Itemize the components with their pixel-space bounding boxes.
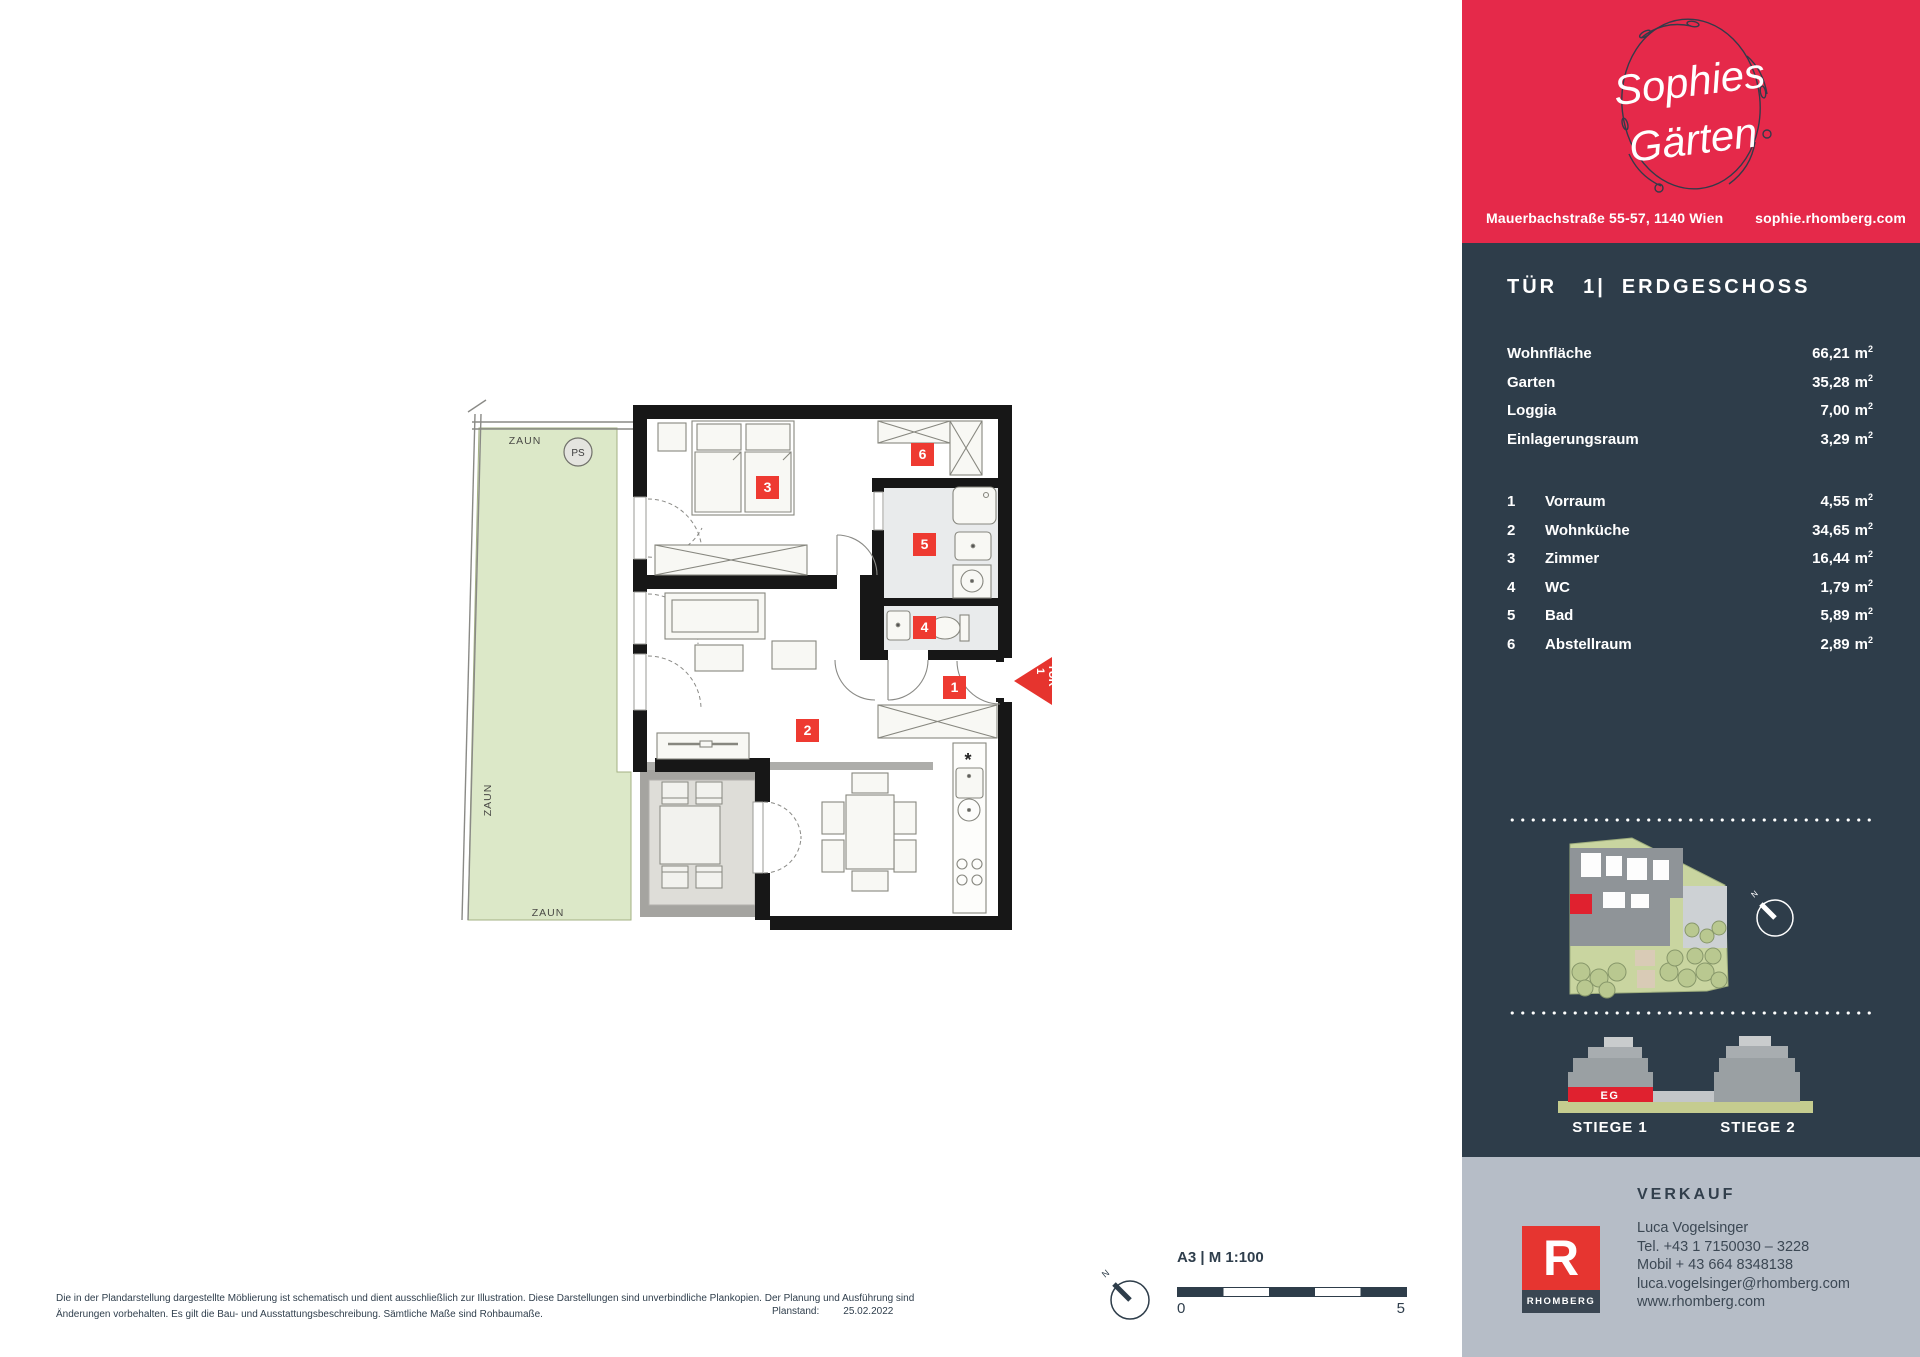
sales-footer: R RHOMBERG VERKAUF Luca Vogelsinger Tel.… [1462, 1157, 1920, 1357]
sales-contact: Luca Vogelsinger Tel. +43 1 7150030 – 32… [1637, 1219, 1850, 1312]
sales-mobile: Mobil + 43 664 8348138 [1637, 1256, 1850, 1275]
area-row: Einlagerungsraum 3,29m2 [1507, 426, 1873, 455]
floor-plan: PS ZAUN ZAUN ZAUN [440, 390, 1080, 950]
wc [884, 606, 998, 650]
area-row: Garten 35,28m2 [1507, 369, 1873, 398]
loggia-door [753, 802, 801, 873]
brand-header: Sophies Gärten Mauerbachstraße 55-57, 11… [1462, 0, 1920, 243]
room-row: 2 Wohnküche 34,65m2 [1507, 517, 1873, 546]
rhomberg-logo-icon: R [1522, 1226, 1600, 1290]
area-row: Loggia 7,00m2 [1507, 397, 1873, 426]
scale-numbers: 0 5 [1177, 1300, 1405, 1317]
bedroom-furniture [655, 421, 807, 575]
svg-text:6: 6 [919, 446, 927, 462]
rhomberg-logo-caption: RHOMBERG [1522, 1290, 1600, 1313]
planstand: Planstand:25.02.2022 [772, 1306, 893, 1317]
building-elevation: EG STIEGE 1 STIEGE 2 [1507, 1025, 1837, 1143]
room-row: 1 Vorraum 4,55m2 [1507, 488, 1873, 517]
disclaimer-line1: Die in der Plandarstellung dargestellte … [56, 1291, 914, 1307]
sidebar: Sophies Gärten Mauerbachstraße 55-57, 11… [1462, 0, 1920, 1357]
svg-text:5: 5 [921, 536, 929, 552]
sales-phone: Tel. +43 1 7150030 – 3228 [1637, 1238, 1850, 1257]
room-row: 3 Zimmer 16,44m2 [1507, 545, 1873, 574]
area-summary-list: Wohnfläche 66,21m2 Garten 35,28m2 Loggia… [1507, 340, 1873, 454]
entrance: 1 TÜR [996, 657, 1059, 705]
sales-heading: VERKAUF [1637, 1186, 1735, 1204]
brand-line1: Sophies [1611, 49, 1767, 114]
svg-text:1: 1 [951, 679, 959, 695]
north-compass: N [1095, 1262, 1165, 1332]
project-website[interactable]: sophie.rhomberg.com [1755, 210, 1906, 226]
scale-end: 5 [1397, 1300, 1405, 1317]
dotted-separator [1507, 1011, 1876, 1015]
svg-text:3: 3 [764, 479, 772, 495]
site-map: N [1507, 830, 1877, 1010]
svg-text:2: 2 [804, 722, 812, 738]
brand-logo: Sophies Gärten [1541, 4, 1841, 210]
sales-website[interactable]: www.rhomberg.com [1637, 1293, 1850, 1312]
room-list: 1 Vorraum 4,55m2 2 Wohnküche 34,65m2 3 Z… [1507, 488, 1873, 659]
room-row: 4 WC 1,79m2 [1507, 574, 1873, 603]
floor-label: ERDGESCHOSS [1622, 276, 1811, 298]
brand-line2: Gärten [1627, 108, 1760, 170]
highlighted-unit [1570, 894, 1592, 914]
map-north-label: N [1750, 889, 1760, 900]
room-row: 5 Bad 5,89m2 [1507, 602, 1873, 631]
scale-bar [1177, 1287, 1407, 1297]
planstand-date: 25.02.2022 [843, 1306, 893, 1317]
area-row: Wohnfläche 66,21m2 [1507, 340, 1873, 369]
svg-text:4: 4 [921, 619, 929, 635]
kitchen-marker: * [964, 750, 971, 770]
scale-label: A3 | M 1:100 [1177, 1249, 1264, 1266]
stiege2-label: STIEGE 2 [1720, 1119, 1796, 1136]
door-label: TÜR [1507, 276, 1557, 298]
garden-area: PS ZAUN ZAUN ZAUN [462, 400, 637, 920]
room-row: 6 Abstellraum 2,89m2 [1507, 631, 1873, 660]
sales-email[interactable]: luca.vogelsinger@rhomberg.com [1637, 1275, 1850, 1294]
eg-label: EG [1601, 1090, 1620, 1102]
dotted-separator [1507, 818, 1876, 822]
north-label: N [1100, 1268, 1111, 1280]
project-address: Mauerbachstraße 55-57, 1140 Wien [1486, 210, 1723, 226]
stiege1-building: EG [1568, 1037, 1653, 1102]
entrance-number: 1 [1034, 668, 1046, 674]
zaun-label-top: ZAUN [509, 435, 542, 447]
map-compass-icon: N [1750, 889, 1793, 936]
scale-start: 0 [1177, 1300, 1185, 1317]
zaun-label-left: ZAUN [482, 784, 494, 817]
entrance-label: TÜR [1046, 664, 1059, 687]
ps-label: PS [571, 448, 585, 459]
stiege2-building [1714, 1036, 1800, 1102]
rhomberg-logo: R RHOMBERG [1522, 1226, 1600, 1313]
stiege1-label: STIEGE 1 [1572, 1119, 1648, 1136]
door-number: 1| [1583, 276, 1606, 298]
zaun-label-bottom: ZAUN [532, 907, 565, 919]
unit-title: TÜR1|ERDGESCHOSS [1507, 276, 1810, 299]
sales-name: Luca Vogelsinger [1637, 1219, 1850, 1238]
planstand-label: Planstand: [772, 1306, 819, 1317]
